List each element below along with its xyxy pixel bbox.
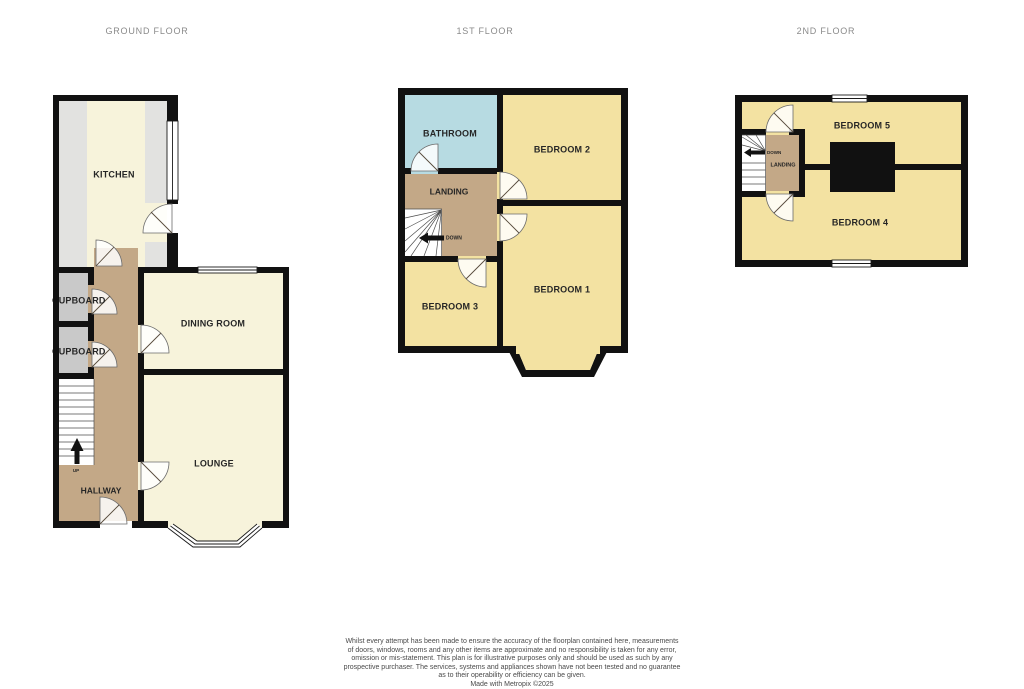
landing-label: LANDING [770,162,795,168]
disclaimer-line: prospective purchaser. The services, sys… [0,664,1024,673]
kitchen-counter [145,101,167,203]
wall [895,164,961,170]
disclaimer-line: omission or mis-statement. This plan is … [0,655,1024,664]
chimney-breast [830,142,895,192]
lounge-room [144,375,283,521]
down-label: DOWN [767,150,781,155]
bay-floor [516,346,600,370]
hallway-label: HALLWAY [81,485,122,495]
second-floor-plan: BEDROOM 5 BEDROOM 4 LANDING DOWN [735,95,968,267]
cupboard-top-label: CUPBOARD [52,295,106,305]
wall [799,129,805,197]
bathroom-label: BATHROOM [423,128,477,138]
dining-room-label: DINING ROOM [181,318,245,328]
disclaimer-line: Made with Metropix ©2025 [0,681,1024,689]
lounge-label: LOUNGE [194,458,234,468]
disclaimer-line: of doors, windows, rooms and any other i… [0,647,1024,656]
wall [742,129,766,135]
wall [742,191,766,197]
bedroom2-label: BEDROOM 2 [534,144,590,154]
kitchen-label: KITCHEN [93,169,134,179]
wall [53,327,59,373]
wall [53,273,59,321]
floorplan-drawing: KITCHEN CUPBOARD CUPBOARD DINING ROOM LO… [0,0,1024,689]
disclaimer-line: as to their operability or efficiency ca… [0,672,1024,681]
ground-floor-plan: KITCHEN CUPBOARD CUPBOARD DINING ROOM LO… [52,95,289,547]
cupboard-bottom-label: CUPBOARD [52,346,106,356]
bedroom4-label: BEDROOM 4 [832,217,888,227]
disclaimer-text: Whilst every attempt has been made to en… [0,638,1024,689]
kitchen-counter [145,242,167,267]
bedroom3-label: BEDROOM 3 [422,301,478,311]
bedroom5-label: BEDROOM 5 [834,120,890,130]
disclaimer-line: Whilst every attempt has been made to en… [0,638,1024,647]
kitchen-counter [59,101,87,267]
wall [805,164,830,170]
landing-label: LANDING [430,186,469,196]
down-label: DOWN [446,235,462,241]
floorplan-page: GROUND FLOOR 1ST FLOOR 2ND FLOOR [0,0,1024,689]
bedroom1-label: BEDROOM 1 [534,284,590,294]
up-label: UP [73,468,79,473]
first-floor-plan: BATHROOM BEDROOM 2 LANDING DOWN BEDROOM … [398,88,628,377]
